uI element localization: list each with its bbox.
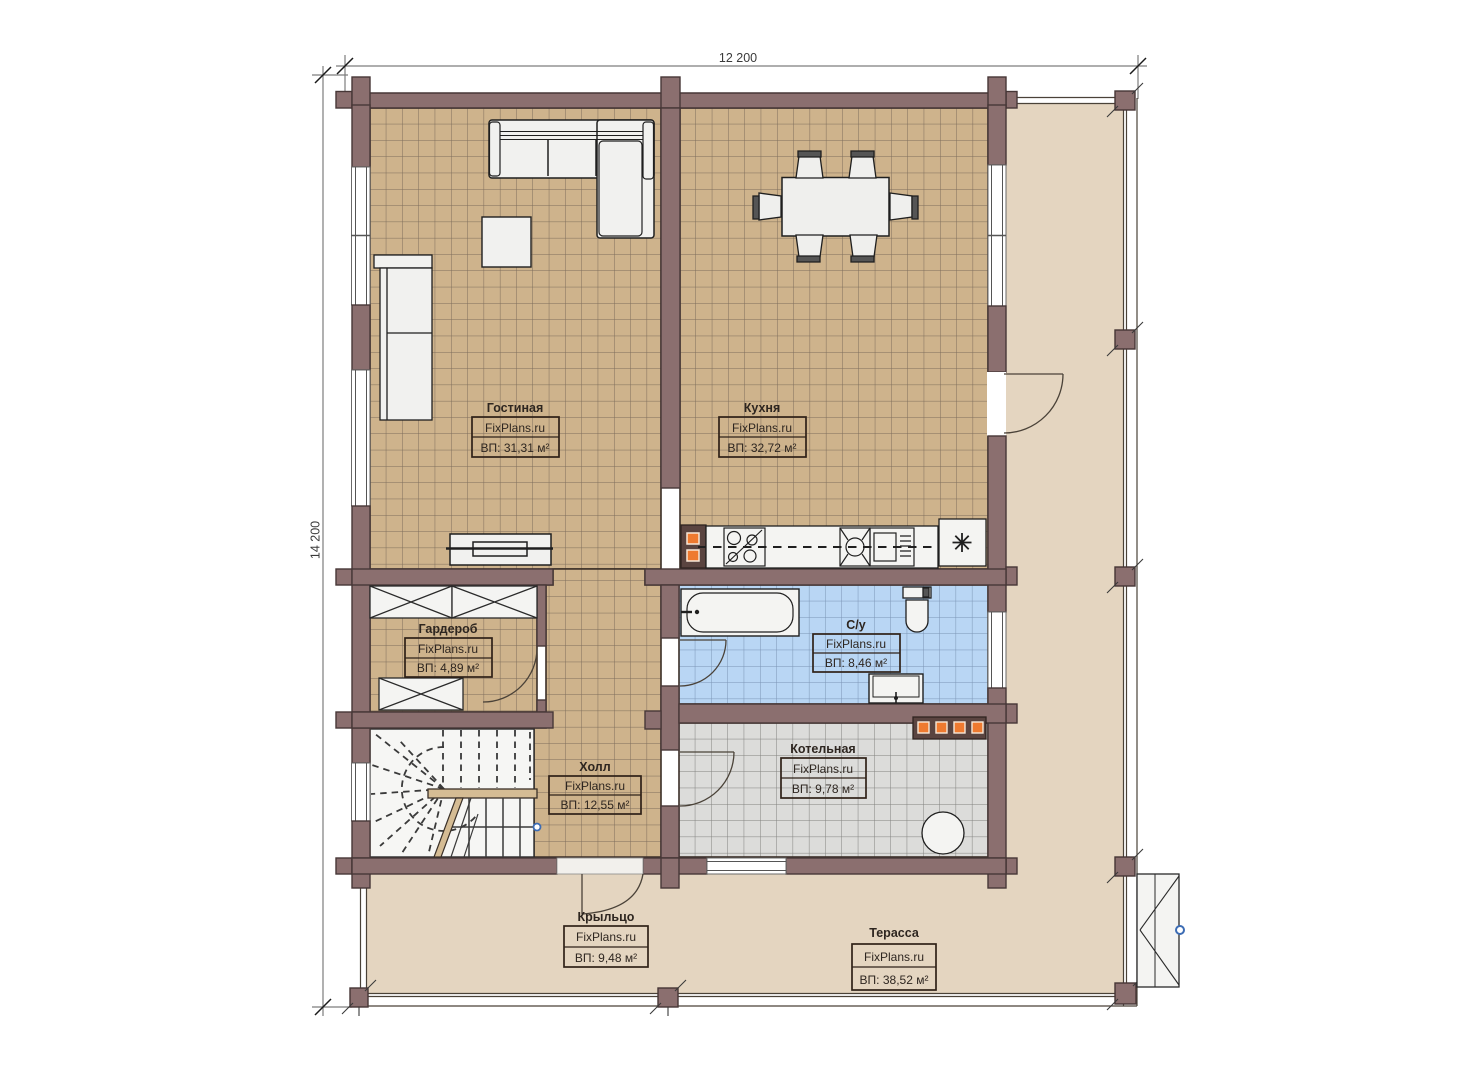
svg-text:ВП: 9,48 м²: ВП: 9,48 м² — [575, 951, 637, 965]
svg-text:ВП: 12,55 м²: ВП: 12,55 м² — [561, 798, 630, 812]
svg-text:12 200: 12 200 — [719, 51, 757, 65]
svg-text:Кухня: Кухня — [744, 401, 781, 415]
svg-text:Терасса: Терасса — [869, 926, 920, 940]
svg-text:FixPlans.ru: FixPlans.ru — [485, 421, 545, 435]
svg-text:FixPlans.ru: FixPlans.ru — [732, 421, 792, 435]
svg-text:Котельная: Котельная — [790, 742, 855, 756]
svg-text:14 200: 14 200 — [309, 521, 323, 559]
svg-text:FixPlans.ru: FixPlans.ru — [576, 930, 636, 944]
svg-text:FixPlans.ru: FixPlans.ru — [565, 779, 625, 793]
svg-text:ВП: 32,72 м²: ВП: 32,72 м² — [728, 441, 797, 455]
svg-text:ВП: 4,89 м²: ВП: 4,89 м² — [417, 661, 479, 675]
svg-text:Гардероб: Гардероб — [418, 622, 477, 636]
svg-text:С/у: С/у — [846, 618, 866, 632]
svg-text:FixPlans.ru: FixPlans.ru — [418, 642, 478, 656]
svg-text:FixPlans.ru: FixPlans.ru — [864, 950, 924, 964]
svg-text:Гостиная: Гостиная — [487, 401, 544, 415]
svg-text:ВП: 38,52 м²: ВП: 38,52 м² — [860, 973, 929, 987]
svg-text:ВП: 9,78 м²: ВП: 9,78 м² — [792, 782, 854, 796]
svg-text:ВП: 8,46 м²: ВП: 8,46 м² — [825, 656, 887, 670]
svg-text:Крыльцо: Крыльцо — [578, 910, 635, 924]
svg-text:FixPlans.ru: FixPlans.ru — [826, 637, 886, 651]
svg-text:Холл: Холл — [579, 760, 610, 774]
svg-text:FixPlans.ru: FixPlans.ru — [793, 762, 853, 776]
svg-text:ВП: 31,31 м²: ВП: 31,31 м² — [481, 441, 550, 455]
